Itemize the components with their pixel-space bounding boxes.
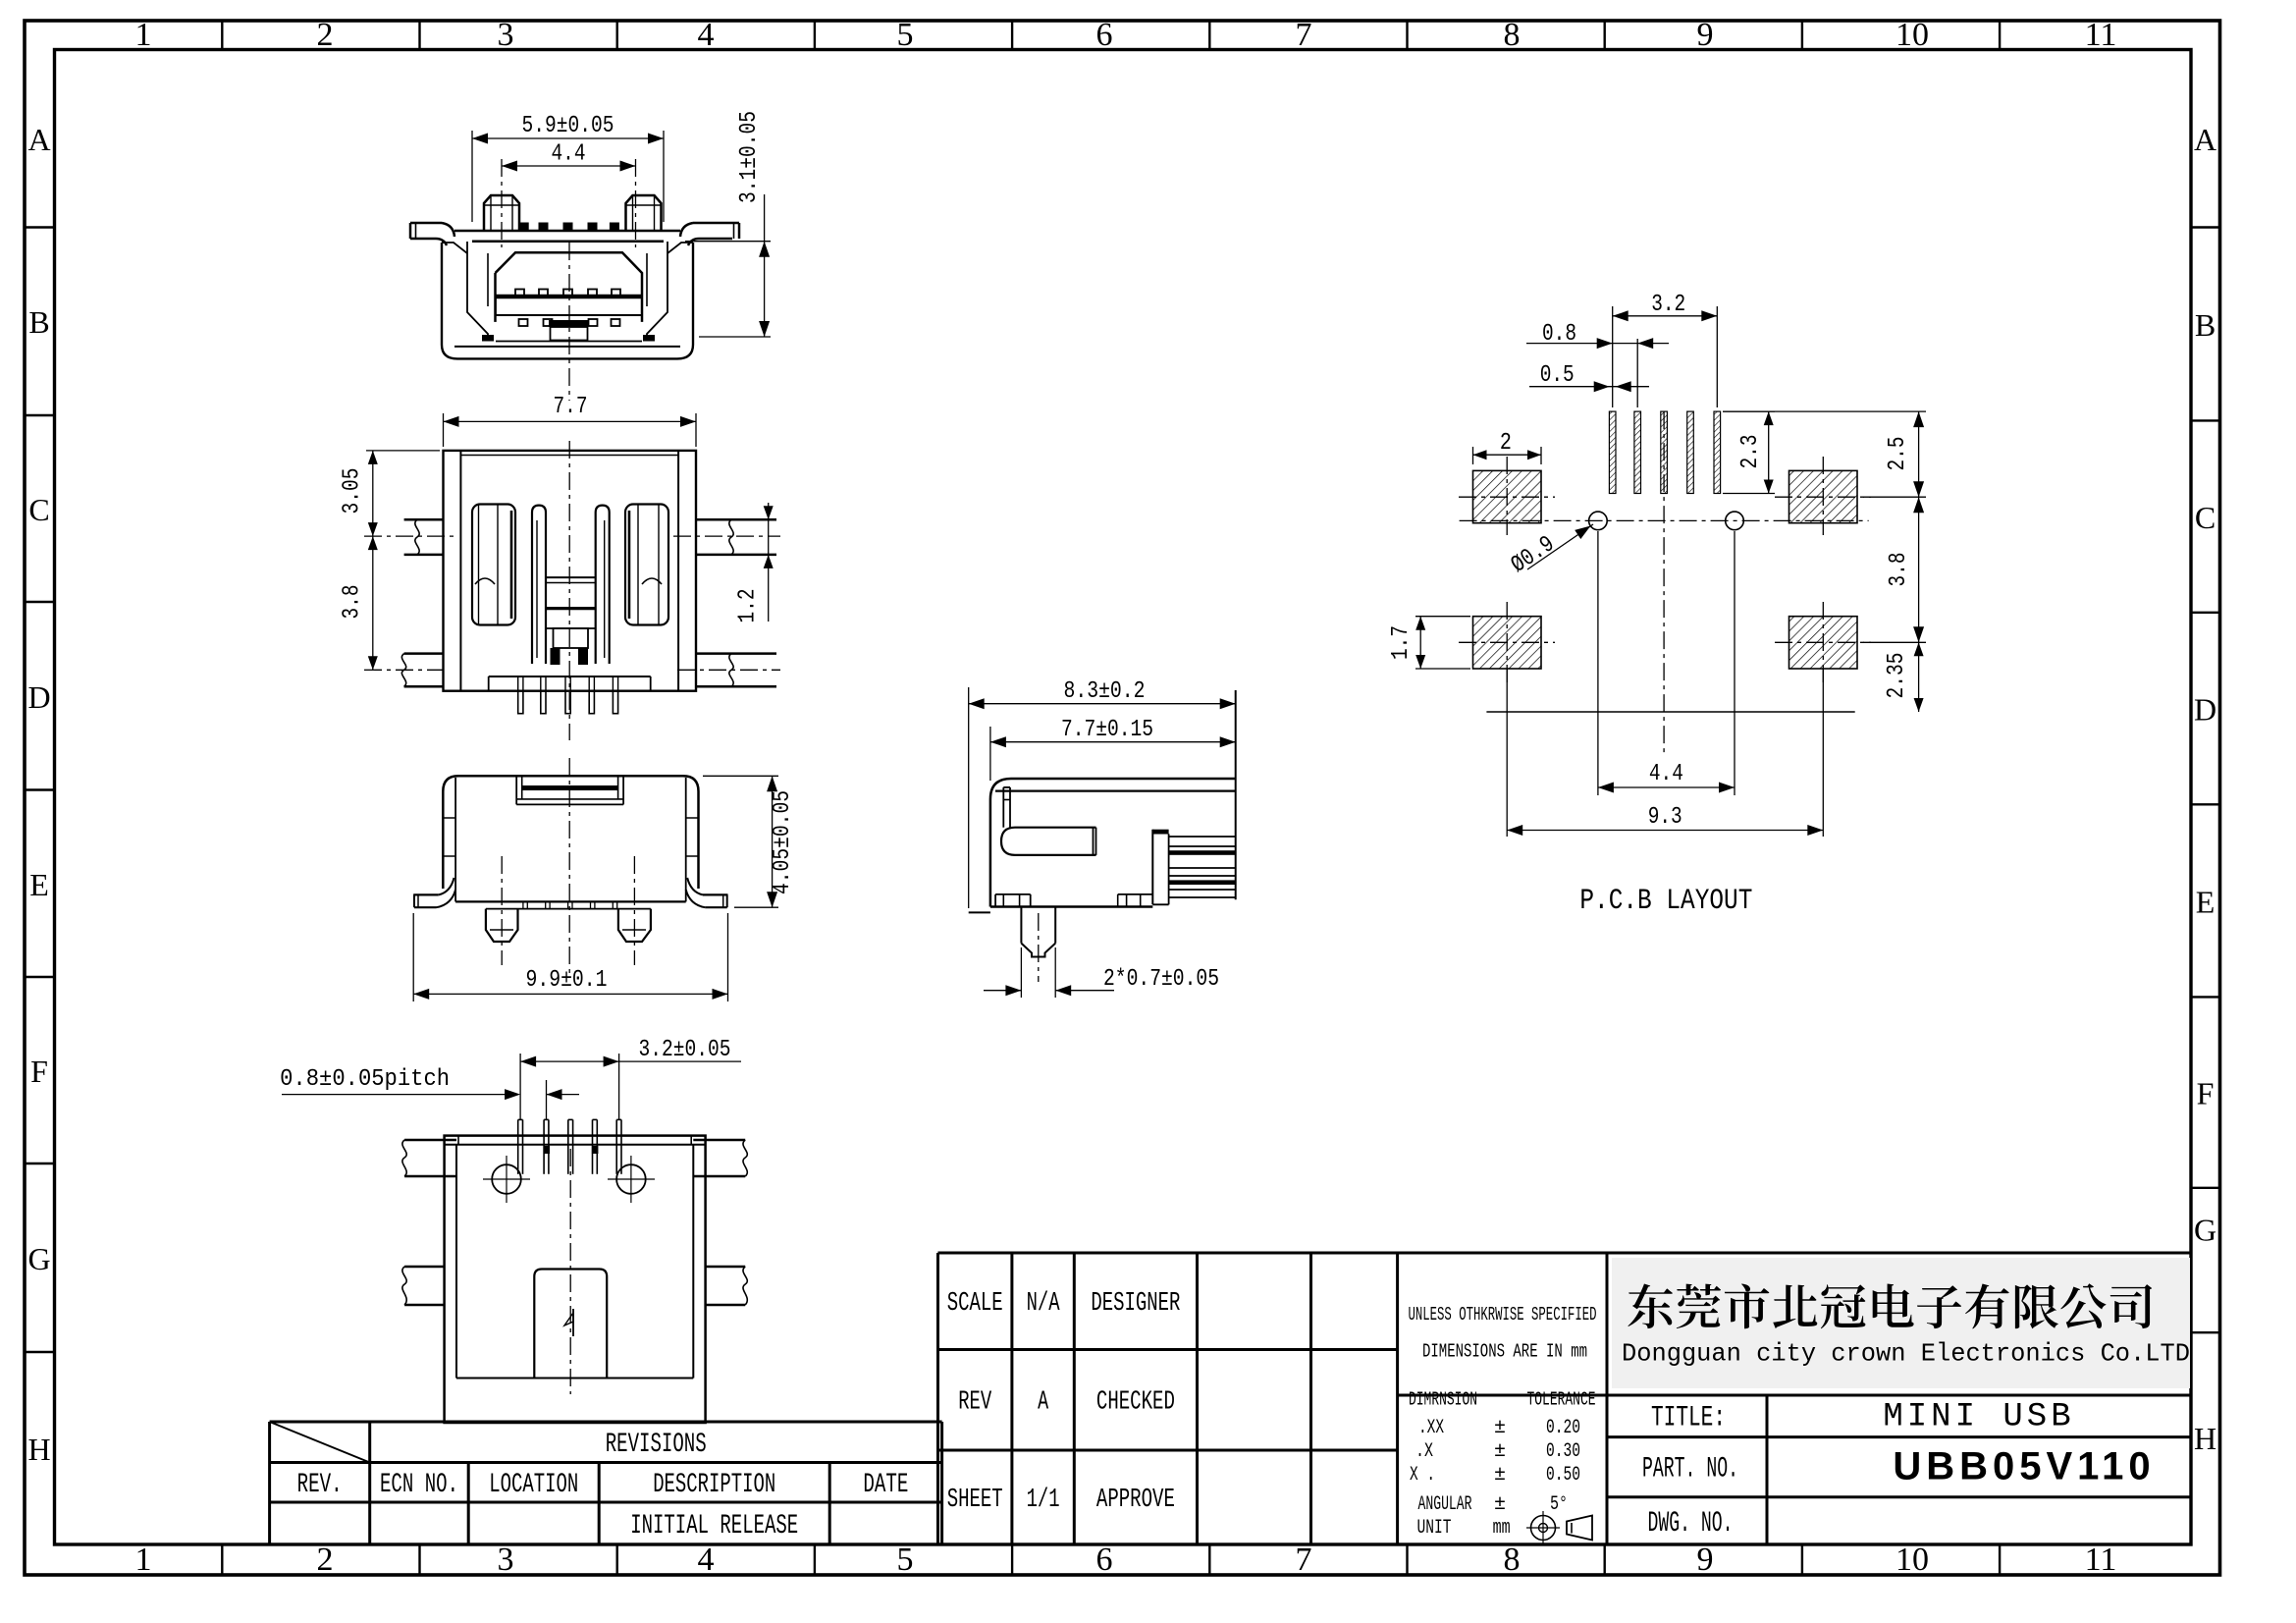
- svg-text:0.5: 0.5: [1540, 362, 1575, 389]
- svg-text:B: B: [2195, 307, 2216, 343]
- svg-text:MINI USB: MINI USB: [1883, 1398, 2074, 1435]
- svg-text:DESIGNER: DESIGNER: [1091, 1289, 1180, 1319]
- svg-text:9.9±0.1: 9.9±0.1: [526, 967, 608, 994]
- svg-text:2.5: 2.5: [1885, 437, 1911, 471]
- svg-text:4.4: 4.4: [552, 141, 586, 168]
- svg-text:.X: .X: [1415, 1440, 1433, 1463]
- svg-text:11: 11: [2085, 17, 2117, 53]
- svg-text:7.7: 7.7: [554, 394, 588, 420]
- svg-text:C: C: [28, 492, 49, 527]
- svg-text:3.2: 3.2: [1651, 292, 1685, 318]
- svg-text:G: G: [27, 1241, 50, 1276]
- svg-text:4: 4: [698, 17, 715, 53]
- svg-text:REV: REV: [958, 1388, 992, 1418]
- svg-text:G: G: [2194, 1213, 2216, 1248]
- svg-text:5: 5: [897, 1542, 914, 1578]
- svg-text:F: F: [2197, 1076, 2215, 1111]
- svg-text:1: 1: [135, 17, 152, 53]
- svg-text:SHEET: SHEET: [947, 1486, 1003, 1515]
- svg-text:6: 6: [1096, 17, 1113, 53]
- svg-text:DESCRIPTION: DESCRIPTION: [653, 1470, 775, 1500]
- svg-text:8: 8: [1504, 1542, 1521, 1578]
- svg-text:A: A: [2194, 122, 2216, 157]
- svg-text:0.30: 0.30: [1546, 1440, 1580, 1463]
- svg-text:0.20: 0.20: [1546, 1417, 1580, 1439]
- svg-text:ECN NO.: ECN NO.: [380, 1470, 458, 1500]
- svg-text:D: D: [27, 679, 50, 715]
- svg-text:2*0.7±0.05: 2*0.7±0.05: [1103, 966, 1219, 993]
- svg-text:DIMRNSION: DIMRNSION: [1409, 1389, 1477, 1411]
- svg-text:8: 8: [1504, 17, 1521, 53]
- svg-text:5.9±0.05: 5.9±0.05: [522, 113, 614, 139]
- svg-text:3.1±0.05: 3.1±0.05: [736, 111, 763, 203]
- svg-text:mm: mm: [1493, 1517, 1511, 1540]
- svg-text:REVISIONS: REVISIONS: [606, 1430, 707, 1460]
- svg-text:7.7±0.15: 7.7±0.15: [1061, 717, 1153, 743]
- svg-text:7: 7: [1296, 17, 1312, 53]
- svg-text:3.2±0.05: 3.2±0.05: [639, 1037, 731, 1063]
- svg-text:0.8±0.05pitch: 0.8±0.05pitch: [280, 1066, 450, 1093]
- svg-text:1.2: 1.2: [734, 589, 761, 623]
- svg-text:9: 9: [1697, 17, 1714, 53]
- svg-text:1.7: 1.7: [1388, 625, 1415, 660]
- svg-text:DWG. NO.: DWG. NO.: [1648, 1507, 1734, 1541]
- svg-text:Dongguan city crown Electronic: Dongguan city crown Electronics Co.LTD: [1622, 1339, 2190, 1369]
- svg-text:TITLE:: TITLE:: [1651, 1402, 1726, 1435]
- svg-text:±: ±: [1494, 1417, 1506, 1439]
- svg-text:A: A: [27, 122, 50, 157]
- svg-text:1/1: 1/1: [1027, 1486, 1060, 1515]
- svg-text:±: ±: [1494, 1464, 1506, 1487]
- svg-text:2.3: 2.3: [1737, 435, 1764, 469]
- svg-text:ANGULAR: ANGULAR: [1418, 1493, 1472, 1516]
- svg-text:3.8: 3.8: [1886, 553, 1912, 587]
- svg-text:E: E: [2196, 885, 2216, 920]
- svg-text:H: H: [2194, 1421, 2216, 1456]
- svg-text:TOLERANCE: TOLERANCE: [1527, 1389, 1596, 1411]
- svg-text:SCALE: SCALE: [947, 1289, 1003, 1319]
- svg-text:APPROVE: APPROVE: [1096, 1486, 1175, 1515]
- svg-text:5: 5: [897, 17, 914, 53]
- svg-text:11: 11: [2085, 1542, 2117, 1578]
- svg-text:9: 9: [1697, 1542, 1714, 1578]
- svg-text:2: 2: [317, 1542, 334, 1578]
- svg-text:8.3±0.2: 8.3±0.2: [1064, 678, 1146, 705]
- svg-text:B: B: [28, 304, 49, 340]
- svg-text:4.4: 4.4: [1649, 761, 1683, 787]
- svg-text:PART. NO.: PART. NO.: [1642, 1453, 1738, 1487]
- svg-text:UNIT: UNIT: [1417, 1517, 1452, 1540]
- svg-text:1: 1: [135, 1542, 152, 1578]
- svg-text:6: 6: [1096, 1542, 1113, 1578]
- svg-text:3: 3: [498, 1542, 514, 1578]
- svg-text:9.3: 9.3: [1648, 804, 1682, 831]
- svg-text:3.8: 3.8: [340, 585, 366, 620]
- svg-text:A: A: [1038, 1388, 1049, 1418]
- svg-text:P.C.B LAYOUT: P.C.B LAYOUT: [1579, 885, 1752, 918]
- svg-text:DIMENSIONS ARE IN mm: DIMENSIONS ARE IN mm: [1422, 1340, 1587, 1362]
- svg-text:CHECKED: CHECKED: [1096, 1388, 1175, 1418]
- svg-text:D: D: [2194, 692, 2216, 728]
- svg-text:3: 3: [498, 17, 514, 53]
- svg-text:X .: X .: [1410, 1464, 1435, 1487]
- svg-text:7: 7: [1296, 1542, 1312, 1578]
- svg-text:F: F: [30, 1054, 48, 1089]
- svg-text:4: 4: [698, 1542, 715, 1578]
- svg-text:.XX: .XX: [1418, 1417, 1444, 1439]
- svg-text:E: E: [29, 867, 49, 902]
- svg-text:N/A: N/A: [1027, 1289, 1061, 1319]
- svg-text:INITIAL RELEASE: INITIAL RELEASE: [630, 1511, 798, 1542]
- svg-text:2: 2: [317, 17, 334, 53]
- svg-text:0.50: 0.50: [1546, 1464, 1580, 1487]
- svg-text:4.05±0.05: 4.05±0.05: [770, 790, 796, 894]
- svg-text:±: ±: [1494, 1493, 1506, 1516]
- svg-text:2: 2: [1500, 430, 1512, 457]
- svg-text:REV.: REV.: [297, 1470, 343, 1500]
- svg-text:H: H: [27, 1432, 50, 1467]
- svg-text:C: C: [2195, 500, 2216, 535]
- svg-text:10: 10: [1896, 17, 1929, 53]
- svg-text:UBB05V110: UBB05V110: [1893, 1444, 2155, 1488]
- svg-text:LOCATION: LOCATION: [489, 1470, 578, 1500]
- svg-text:±: ±: [1494, 1440, 1506, 1463]
- svg-text:10: 10: [1896, 1542, 1929, 1578]
- svg-text:5°: 5°: [1550, 1493, 1568, 1516]
- svg-text:DATE: DATE: [863, 1470, 908, 1500]
- svg-text:2.35: 2.35: [1884, 653, 1910, 699]
- svg-text:3.05: 3.05: [340, 468, 366, 514]
- svg-text:UNLESS OTHKRWISE SPECIFIED: UNLESS OTHKRWISE SPECIFIED: [1409, 1304, 1597, 1325]
